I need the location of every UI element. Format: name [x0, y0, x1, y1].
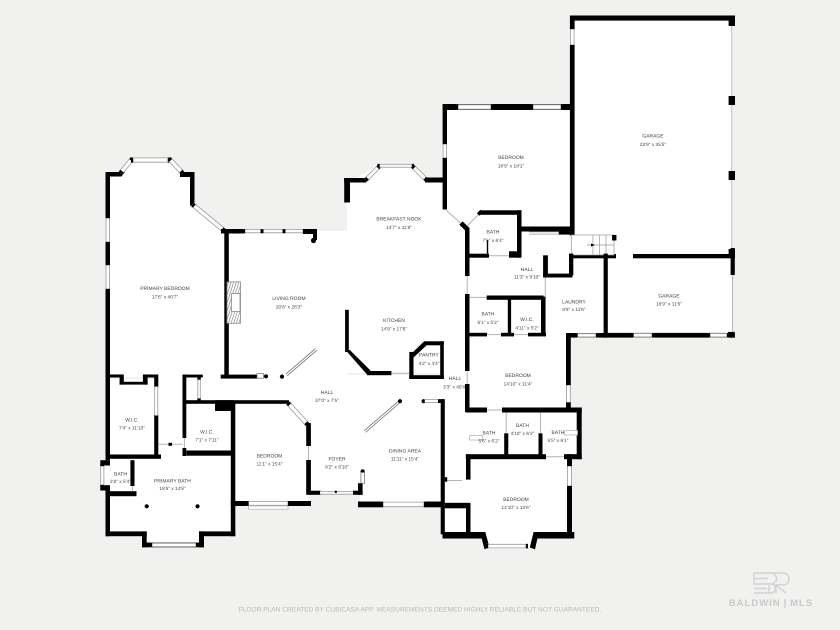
svg-text:W.I.C.: W.I.C. [200, 430, 214, 436]
svg-text:BATH: BATH [552, 430, 565, 436]
svg-text:LAUNDRY: LAUNDRY [562, 300, 586, 306]
svg-text:18'9" x 18'1": 18'9" x 18'1" [498, 164, 525, 169]
svg-text:3'8" x 5'4": 3'8" x 5'4" [110, 479, 131, 484]
svg-text:6'1" x 5'2": 6'1" x 5'2" [477, 320, 498, 325]
svg-text:18'6" x 14'8": 18'6" x 14'8" [159, 486, 186, 491]
svg-text:14'7" x 11'8": 14'7" x 11'8" [386, 225, 412, 230]
svg-text:14'10" x 11'4": 14'10" x 11'4" [504, 382, 533, 387]
svg-text:BREAKFAST NOOK: BREAKFAST NOOK [376, 217, 422, 223]
svg-text:7'1" x 7'11": 7'1" x 7'11" [195, 438, 219, 443]
svg-text:BATH: BATH [114, 472, 127, 478]
svg-text:BATH: BATH [483, 431, 496, 437]
svg-text:23'9" x 35'5": 23'9" x 35'5" [640, 142, 667, 147]
svg-text:KITCHEN: KITCHEN [383, 318, 405, 324]
svg-text:20'8" x 26'3": 20'8" x 26'3" [276, 305, 303, 310]
svg-text:BEDROOM: BEDROOM [503, 497, 529, 503]
svg-text:8'2" x 9'10": 8'2" x 9'10" [325, 465, 349, 470]
svg-text:W.I.C.: W.I.C. [520, 317, 534, 323]
svg-text:GARAGE: GARAGE [642, 134, 664, 140]
svg-text:17'6" x 40'7": 17'6" x 40'7" [152, 295, 179, 300]
svg-text:4'2" x 4'4": 4'2" x 4'4" [418, 361, 439, 366]
svg-text:7'5" x 6'4": 7'5" x 6'4" [482, 238, 503, 243]
svg-text:LIVING ROOM: LIVING ROOM [272, 296, 305, 302]
svg-text:5'5" x 6'1": 5'5" x 6'1" [547, 438, 568, 443]
svg-text:PRIMARY BEDROOM: PRIMARY BEDROOM [140, 286, 189, 292]
svg-text:37'0" x 7'5": 37'0" x 7'5" [315, 398, 339, 403]
svg-text:BALDWIN | MLS: BALDWIN | MLS [729, 598, 813, 609]
svg-text:14'9" x 17'6": 14'9" x 17'6" [381, 327, 408, 332]
svg-text:BEDROOM: BEDROOM [257, 454, 283, 460]
svg-text:8'9" x 11'6": 8'9" x 11'6" [562, 307, 586, 312]
svg-text:5'6" x 6'2": 5'6" x 6'2" [478, 439, 499, 444]
svg-text:DINING AREA: DINING AREA [389, 449, 422, 455]
svg-text:BEDROOM: BEDROOM [505, 373, 531, 379]
svg-text:HALL: HALL [321, 390, 334, 396]
svg-text:BATH: BATH [482, 312, 495, 318]
svg-text:3'3" x 40'8": 3'3" x 40'8" [443, 385, 467, 390]
svg-text:18'9" x 11'6": 18'9" x 11'6" [656, 302, 682, 307]
svg-text:BATH: BATH [487, 230, 500, 236]
svg-text:PANTRY: PANTRY [419, 353, 439, 359]
svg-text:BEDROOM: BEDROOM [498, 155, 524, 161]
svg-text:W.I.C.: W.I.C. [125, 418, 139, 424]
svg-text:4'10" x 6'2": 4'10" x 6'2" [511, 431, 535, 436]
svg-text:11'1" x 15'4": 11'1" x 15'4" [256, 462, 282, 467]
svg-text:FOYER: FOYER [328, 457, 346, 463]
svg-text:HALL: HALL [449, 376, 462, 382]
svg-text:11'11" x 15'4": 11'11" x 15'4" [391, 457, 420, 462]
svg-text:FLOOR PLAN CREATED BY CUBICASA: FLOOR PLAN CREATED BY CUBICASA APP. MEAS… [239, 607, 602, 614]
svg-text:11'3" x 9'10": 11'3" x 9'10" [514, 275, 540, 280]
svg-text:PRIMARY BATH: PRIMARY BATH [154, 479, 191, 485]
svg-text:BATH: BATH [516, 423, 529, 429]
svg-text:HALL: HALL [521, 267, 534, 273]
svg-text:GARAGE: GARAGE [658, 294, 680, 300]
svg-text:4'11" x 5'2": 4'11" x 5'2" [515, 326, 539, 331]
svg-text:7'4" x 11'10": 7'4" x 11'10" [119, 426, 145, 431]
svg-text:14'10" x 13'6": 14'10" x 13'6" [501, 505, 530, 510]
